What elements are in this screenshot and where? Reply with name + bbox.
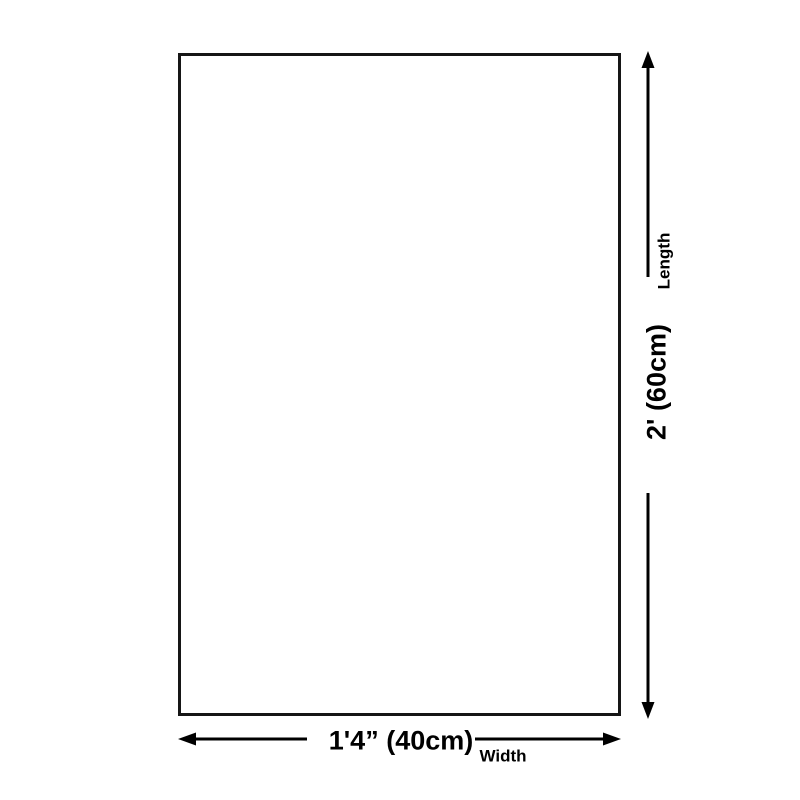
arrow-down-icon bbox=[642, 702, 655, 719]
product-outline-box bbox=[178, 53, 621, 716]
width-dimension-value: 1'4” (40cm) bbox=[329, 728, 474, 755]
length-dimension-value: 2' (60cm) bbox=[644, 324, 671, 440]
width-dimension-label: Width bbox=[479, 748, 526, 765]
size-diagram: 2' (60cm) Length 1'4” (40cm) Width bbox=[0, 0, 800, 800]
arrow-right-icon bbox=[603, 733, 621, 746]
arrow-up-icon bbox=[642, 51, 655, 68]
arrow-left-icon bbox=[178, 733, 196, 746]
length-dimension-label: Length bbox=[656, 233, 673, 290]
